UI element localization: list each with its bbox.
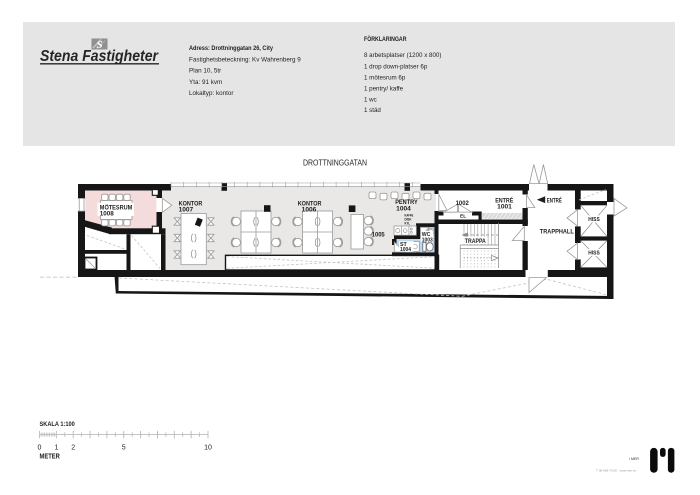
svg-text:/ MER: / MER (629, 457, 639, 461)
svg-text:5: 5 (122, 445, 126, 452)
svg-text:ENTRÉ: ENTRÉ (547, 196, 562, 204)
svg-text:1 wc: 1 wc (364, 96, 377, 103)
svg-text:1003: 1003 (422, 237, 433, 243)
svg-text:METER: METER (40, 453, 60, 460)
svg-text:KYL: KYL (405, 221, 411, 225)
svg-text:HISS: HISS (588, 217, 600, 223)
svg-text:TRAPPHALL: TRAPPHALL (540, 228, 574, 235)
svg-text:1: 1 (54, 445, 58, 452)
svg-text:1005: 1005 (372, 232, 385, 239)
svg-text:0: 0 (38, 445, 42, 452)
svg-text:1 pentry/ kaffe: 1 pentry/ kaffe (364, 86, 404, 93)
svg-text:Yta: 91 kvm: Yta: 91 kvm (189, 79, 222, 86)
svg-text:FÖRKLARINGAR: FÖRKLARINGAR (364, 34, 407, 43)
svg-text:Adress: Drottninggatan 26, Cit: Adress: Drottninggatan 26, City (189, 45, 273, 52)
svg-text:1004: 1004 (400, 247, 411, 253)
svg-text:1 mötesrum 6p: 1 mötesrum 6p (364, 75, 406, 82)
svg-text:1007: 1007 (179, 206, 194, 213)
svg-text:T 08-658 79 00 www.mer.se: T 08-658 79 00 www.mer.se (596, 468, 636, 472)
svg-text:10: 10 (204, 445, 212, 452)
svg-text:Fastighetsbeteckning: Kv Wahre: Fastighetsbeteckning: Kv Wahrenberg 9 (189, 57, 301, 64)
svg-text:8 arbetsplatser (1200 x 800): 8 arbetsplatser (1200 x 800) (364, 52, 441, 59)
svg-text:DROTTNINGGATAN: DROTTNINGGATAN (303, 158, 367, 168)
svg-text:1004: 1004 (396, 206, 411, 213)
svg-text:Plan 10, 5tr: Plan 10, 5tr (189, 68, 221, 75)
svg-text:EL: EL (460, 213, 466, 219)
svg-text:1001: 1001 (497, 204, 512, 211)
svg-text:SKALA 1:100: SKALA 1:100 (40, 421, 76, 428)
svg-text:1006: 1006 (302, 206, 317, 213)
svg-text:2: 2 (71, 445, 75, 452)
svg-text:Stena Fastigheter: Stena Fastigheter (40, 48, 159, 65)
svg-text:Lokaltyp: kontor: Lokaltyp: kontor (189, 90, 233, 97)
svg-text:HISS: HISS (588, 251, 600, 257)
svg-text:1 drop down-platser 6p: 1 drop down-platser 6p (364, 63, 428, 70)
svg-text:1008: 1008 (100, 211, 115, 218)
svg-text:1 städ: 1 städ (364, 107, 381, 114)
svg-text:1002: 1002 (456, 200, 470, 207)
svg-text:TRAPPA: TRAPPA (465, 238, 486, 245)
